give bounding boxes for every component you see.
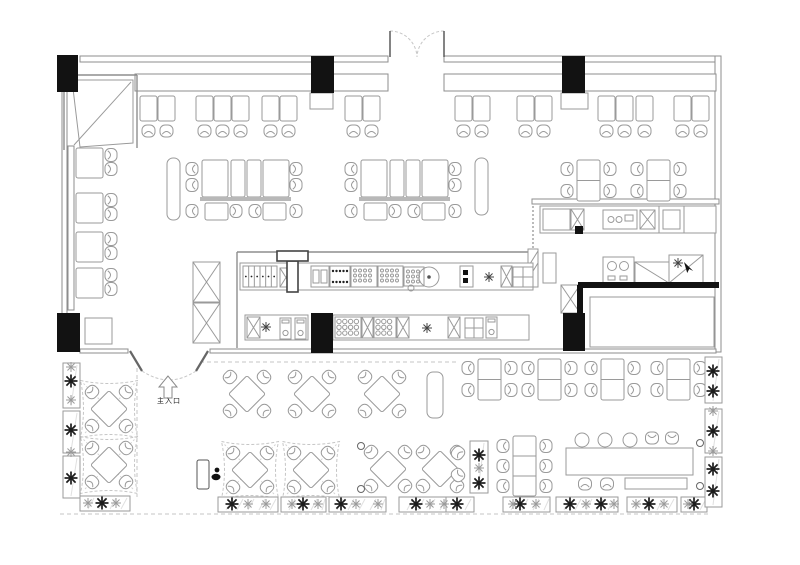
entrance-label: 主入口 [148,397,190,405]
chair [449,163,461,176]
chair [631,185,643,198]
chair [264,125,277,137]
dining-table [455,96,472,121]
chair [449,179,461,192]
chair [390,368,408,386]
door-swing [417,31,444,57]
kitchen-hood [659,206,684,233]
wall [68,146,74,310]
chair [497,460,509,473]
chair [497,440,509,453]
chair [631,163,643,176]
stool [623,433,637,447]
chair [396,477,414,495]
chair [345,205,357,218]
dining-table [345,96,362,121]
knob [332,281,334,283]
f [620,276,627,280]
chair [234,125,247,137]
kitchen-bottle [486,317,497,338]
chair [540,440,552,453]
plant [226,498,239,511]
table-top [361,160,387,197]
dot [262,276,264,278]
column [57,313,80,352]
dining-table [76,268,103,298]
stool [579,478,592,490]
stool [575,433,589,447]
plant [595,498,608,511]
k [463,278,468,283]
kitchen-sinkfaucet [603,257,634,283]
chair [600,125,613,137]
chair [462,362,474,375]
dining-table [363,96,380,121]
kitchen-bottle [295,318,306,339]
chair [356,402,374,420]
kitchen-xbox [640,210,655,229]
chair [694,125,707,137]
chair [475,125,488,137]
table-top [231,160,245,197]
dining-table [513,436,536,496]
dining-table [280,96,297,121]
unit [460,266,473,287]
wok-center [427,275,431,279]
light-bollard [697,440,704,447]
table-top [247,160,261,197]
kitchen-xbox [362,317,373,338]
table-top [205,203,228,220]
plant [708,446,718,456]
plant [439,499,449,509]
plant [531,499,541,509]
service-table [561,93,588,109]
chair [356,368,374,386]
bench [167,158,180,220]
chair [651,362,663,375]
kitchen-xbox [193,262,220,302]
chair [694,362,706,375]
column [562,56,585,93]
kitchen-sinkoval [603,210,637,229]
chair [230,205,242,218]
kitchen-asterdiag [669,255,703,283]
plant [451,498,464,511]
knob [346,281,348,283]
chair [389,205,401,218]
counter [543,253,556,283]
chair [320,368,338,386]
dining-table [76,193,103,223]
plant [111,498,121,508]
plant [351,499,361,509]
table-top [390,160,404,197]
kitchen-blackpair [460,266,473,287]
chair [249,205,261,218]
bench [427,372,443,418]
knob [342,281,344,283]
door-swing [142,371,169,380]
chair [186,163,198,176]
chair [505,362,517,375]
plant [473,477,486,490]
chair [105,283,117,296]
chair [604,163,616,176]
chair [345,163,357,176]
plant [564,498,577,511]
chair [565,362,577,375]
counter [543,209,570,230]
dining-table [196,96,213,121]
chair [290,163,302,176]
table-top [406,160,420,197]
k [463,270,468,275]
table-cluster [200,160,291,220]
column [57,55,78,92]
chair [561,185,573,198]
exhaust-duct [277,251,308,261]
inner [663,210,680,229]
dining-table [636,96,653,121]
chair [221,402,239,420]
chair [537,125,550,137]
kitchen-circgrid [378,266,403,287]
chair [290,205,302,218]
plant [335,498,348,511]
plant [65,424,78,437]
cold-room [590,297,714,347]
dining-table [473,96,490,121]
kitchen-grid2x2 [465,318,483,338]
plant [425,499,435,509]
chair [449,205,461,218]
service-table [310,93,333,109]
unit [330,266,350,287]
chair [505,384,517,397]
plant [65,375,78,388]
chair [676,125,689,137]
chair [160,125,173,137]
wall [135,74,388,91]
kitchen-compartments [243,266,277,287]
plant [243,499,253,509]
table-top [422,203,445,220]
wall [532,199,719,204]
plant [659,499,669,509]
chair [105,163,117,176]
b2 [282,320,289,323]
wall [210,349,716,353]
chair [618,125,631,137]
light-bollard [358,443,365,450]
knob [335,281,337,283]
bench [625,478,687,489]
floor-plan-page: 主入口 [0,0,800,565]
kitchen-xbox [397,317,409,338]
door-swing [169,371,196,380]
column [311,313,333,353]
kitchen-xbox [448,317,460,338]
plant [287,499,297,509]
dining-table [214,96,231,121]
plant [508,499,518,509]
plant [83,498,93,508]
chair [449,444,467,462]
floor-drain [484,272,494,282]
table-top [263,203,286,220]
plant [65,472,78,485]
chair [462,384,474,397]
chair [362,477,380,495]
chair [255,368,273,386]
chair [540,460,552,473]
person-figure [212,474,221,480]
dot [251,276,253,278]
knob [335,270,337,272]
plant [313,499,323,509]
chair [290,179,302,192]
dining-table [76,148,103,178]
plant [707,385,720,398]
chair [255,402,273,420]
kitchen-griddle [335,317,361,338]
knob [339,270,341,272]
dining-table [517,96,534,121]
stool [598,433,612,447]
chair [585,362,597,375]
table-top [422,160,448,197]
kitchen-xbox [501,266,512,287]
plant [474,463,484,473]
kitchen-sink2 [311,266,329,287]
kitchen-xbox [247,317,260,338]
dining-table [140,96,157,121]
plant [66,395,76,405]
dot [273,276,275,278]
floor-drain [673,258,683,268]
b2 [488,319,495,322]
chair [286,368,304,386]
light-bollard [697,483,704,490]
chair [651,384,663,397]
kitchen-burners [330,266,350,287]
bench [475,158,488,215]
knob [342,270,344,272]
chair [286,402,304,420]
exhaust-duct [287,261,298,292]
basin [321,270,327,283]
dining-table [232,96,249,121]
plant [631,499,641,509]
kitchen-diag [635,262,669,283]
chair [457,125,470,137]
basin [313,270,319,283]
kitchen-plain [543,209,570,230]
chair [674,185,686,198]
plant [261,499,271,509]
chair [646,432,659,444]
plant [473,449,486,462]
chair [604,185,616,198]
f [608,276,615,280]
chair [105,233,117,246]
chair [522,384,534,397]
chair [221,368,239,386]
kitchen-xbox [193,303,220,343]
plant [410,498,423,511]
column [311,56,334,93]
kitchen-blacksq [575,226,583,234]
plant [609,499,619,509]
divider-bar [359,197,450,201]
dining-table [76,232,103,262]
chair [519,125,532,137]
floor-drain [422,323,432,333]
person-figure [215,468,220,473]
dining-table [674,96,691,121]
dot [268,276,270,278]
b2 [297,320,304,323]
dining-table [158,96,175,121]
chair [694,384,706,397]
wall [80,349,128,353]
chair [497,480,509,493]
knob [332,270,334,272]
plant [707,365,720,378]
chair [105,208,117,221]
column [563,313,585,351]
chair [628,384,640,397]
plant [66,362,76,372]
plant [708,406,718,416]
dot [256,276,258,278]
chair [565,384,577,397]
floor-plan-canvas [0,0,800,565]
chair [390,402,408,420]
dining-table [535,96,552,121]
chair [216,125,229,137]
kitchen-bottle [280,318,291,339]
dining-table [598,96,615,121]
s2 [625,215,633,221]
knob [346,270,348,272]
chair [408,205,420,218]
plant [707,463,720,476]
plant [643,498,656,511]
chair [282,125,295,137]
table-top [202,160,228,197]
plant [96,497,109,510]
dining-table [692,96,709,121]
light-bollard [358,486,365,493]
chair [561,163,573,176]
kitchen-grid2x2 [513,267,533,287]
plant [66,447,76,457]
chair [522,362,534,375]
door-leaf [130,351,142,371]
chair [414,443,432,461]
chair [142,125,155,137]
chair [320,402,338,420]
divider-bar [200,197,291,201]
plant [683,499,693,509]
plant [297,498,310,511]
table-top [263,160,289,197]
kitchen-plain [543,253,556,283]
stool [601,478,614,490]
table-cluster [359,160,450,220]
chair [585,384,597,397]
door-swing [390,31,417,57]
long-table [566,448,693,475]
table-top [364,203,387,220]
chair [186,179,198,192]
plant [707,425,720,438]
plant [373,499,383,509]
knob [339,281,341,283]
chair [347,125,360,137]
chair [345,179,357,192]
plant [581,499,591,509]
dining-table [616,96,633,121]
chair [105,269,117,282]
kitchen-griddle [374,317,396,338]
door-leaf [196,351,208,371]
plant [707,485,720,498]
standing-sign [197,460,209,489]
chair [198,125,211,137]
chair [540,480,552,493]
dining-table [85,318,112,344]
chair [105,149,117,162]
chair [414,477,432,495]
chair [365,125,378,137]
chair [396,443,414,461]
chair [628,362,640,375]
dining-table [262,96,279,121]
chair [666,432,679,444]
kitchen-circgrid [351,266,377,287]
chair [638,125,651,137]
floor-drain [261,322,271,332]
dot [245,276,247,278]
chair [186,205,198,218]
chair [105,194,117,207]
chair [674,163,686,176]
wall [80,56,388,62]
chair [105,247,117,260]
black-block [575,226,583,234]
